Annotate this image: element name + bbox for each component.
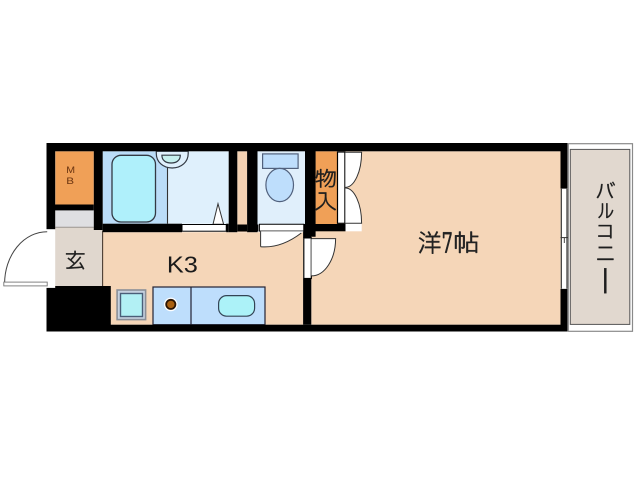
- svg-text:M: M: [66, 165, 75, 175]
- svg-text:B: B: [66, 176, 74, 186]
- svg-text:K3: K3: [167, 252, 198, 278]
